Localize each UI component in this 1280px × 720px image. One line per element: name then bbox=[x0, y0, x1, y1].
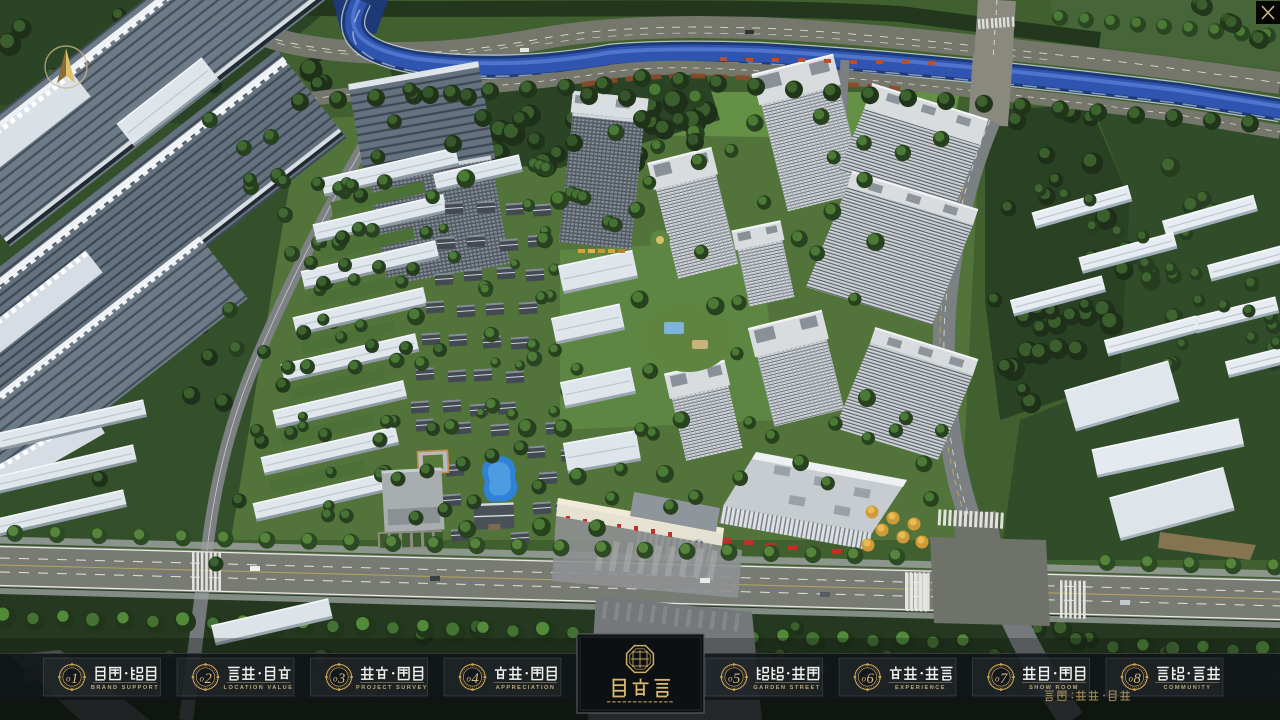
svg-text:7: 7 bbox=[1000, 671, 1008, 687]
svg-text:BRAND SUPPORT: BRAND SUPPORT bbox=[91, 685, 159, 691]
svg-text:COMMUNITY: COMMUNITY bbox=[1164, 685, 1212, 691]
svg-text:EXPERIENCE: EXPERIENCE bbox=[895, 685, 946, 691]
svg-text:PROJECT SURVEY: PROJECT SURVEY bbox=[356, 685, 428, 691]
svg-text:1: 1 bbox=[71, 671, 78, 687]
svg-text:6: 6 bbox=[867, 671, 875, 687]
svg-text:5: 5 bbox=[733, 671, 740, 687]
svg-text:GARDEN STREET: GARDEN STREET bbox=[753, 685, 820, 691]
svg-text:3: 3 bbox=[337, 671, 345, 687]
svg-text:LOCATION VALUE: LOCATION VALUE bbox=[224, 685, 294, 691]
svg-text:8: 8 bbox=[1134, 671, 1142, 687]
svg-text:SHOW ROOM: SHOW ROOM bbox=[1029, 685, 1079, 691]
svg-text:APPRECIATION: APPRECIATION bbox=[496, 685, 556, 691]
svg-text:4: 4 bbox=[472, 671, 479, 687]
svg-text:2: 2 bbox=[205, 671, 212, 687]
